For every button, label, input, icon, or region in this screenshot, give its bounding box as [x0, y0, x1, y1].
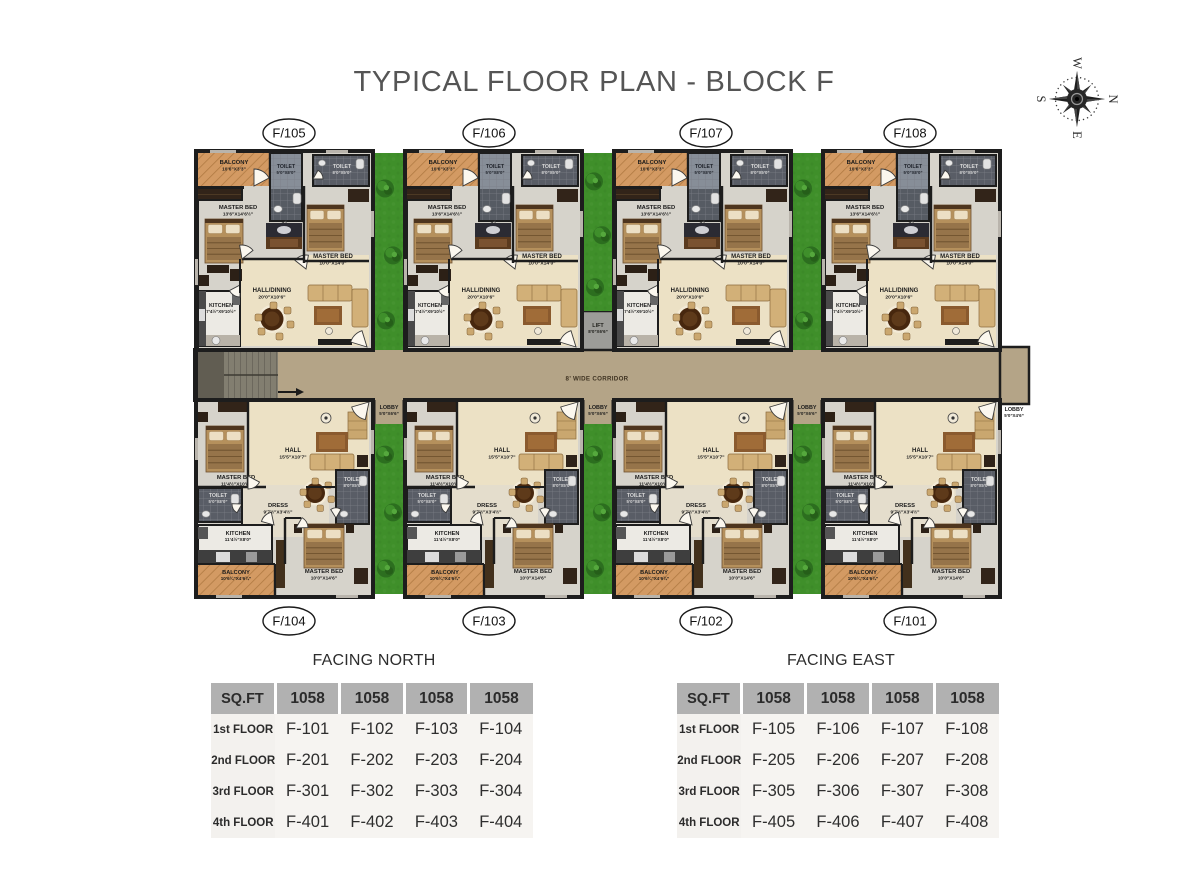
svg-text:MASTER BED: MASTER BED	[428, 205, 466, 211]
svg-text:8’0”X5’0”: 8’0”X5’0”	[971, 483, 990, 488]
svg-text:KITCHEN: KITCHEN	[226, 531, 251, 537]
svg-text:5’0”X8’0”: 5’0”X8’0”	[209, 499, 228, 504]
svg-text:KITCHEN: KITCHEN	[644, 531, 669, 537]
svg-text:5’0”X6’6”: 5’0”X6’6”	[379, 411, 399, 416]
svg-text:5’0”X6’6”: 5’0”X6’6”	[797, 411, 817, 416]
svg-text:MASTER BED: MASTER BED	[940, 254, 980, 260]
svg-text:11’4½”X8’0”: 11’4½”X8’0”	[434, 536, 460, 542]
svg-text:10’6¾”X4’6¾”: 10’6¾”X4’6¾”	[221, 575, 252, 581]
svg-text:F/107: F/107	[689, 126, 722, 141]
svg-text:5’0”X8’0”: 5’0”X8’0”	[418, 499, 437, 504]
svg-text:5’0”X8’0”: 5’0”X8’0”	[904, 170, 923, 175]
svg-text:HALL: HALL	[912, 448, 928, 454]
svg-text:HALL: HALL	[285, 448, 301, 454]
svg-text:13’6”X14’6½”: 13’6”X14’6½”	[223, 210, 254, 217]
svg-text:8’0”X5’0”: 8’0”X5’0”	[553, 483, 572, 488]
svg-text:MASTER BED: MASTER BED	[313, 254, 353, 260]
svg-text:MASTER BED: MASTER BED	[305, 569, 343, 575]
svg-text:F/102: F/102	[689, 614, 722, 629]
svg-text:10’6”X3’3”: 10’6”X3’3”	[222, 166, 246, 172]
svg-text:5’0”X8’0”: 5’0”X8’0”	[695, 170, 714, 175]
svg-text:HALL: HALL	[703, 448, 719, 454]
svg-text:7’4½”X9’10½”: 7’4½”X9’10½”	[624, 308, 653, 314]
svg-text:DRESS: DRESS	[686, 503, 706, 509]
svg-text:5’0”X8’0”: 5’0”X8’0”	[627, 499, 646, 504]
svg-text:N: N	[1106, 94, 1120, 103]
svg-text:5’0”X4’6”: 5’0”X4’6”	[1004, 413, 1024, 418]
svg-text:7’4½”X9’10½”: 7’4½”X9’10½”	[833, 308, 862, 314]
svg-text:F/105: F/105	[272, 126, 305, 141]
svg-text:8’0”X6’6”: 8’0”X6’6”	[588, 329, 608, 334]
svg-text:8’0”X5’0”: 8’0”X5’0”	[751, 170, 770, 175]
svg-text:10’0”X14’6”: 10’0”X14’6”	[938, 575, 965, 581]
svg-text:8’0”X5’0”: 8’0”X5’0”	[344, 483, 363, 488]
svg-text:DRESS: DRESS	[268, 503, 288, 509]
svg-text:7’4½”X9’10½”: 7’4½”X9’10½”	[415, 308, 444, 314]
svg-text:HALL/DINING: HALL/DINING	[462, 288, 501, 294]
svg-text:20’0”X10’6”: 20’0”X10’6”	[467, 295, 495, 301]
svg-text:F/106: F/106	[472, 126, 505, 141]
svg-text:10’0”X14’6”: 10’0”X14’6”	[520, 575, 547, 581]
svg-text:KITCHEN: KITCHEN	[853, 531, 878, 537]
svg-text:F/108: F/108	[893, 126, 926, 141]
svg-text:DRESS: DRESS	[477, 503, 497, 509]
svg-text:MASTER BED: MASTER BED	[846, 205, 884, 211]
svg-text:BALCONY: BALCONY	[849, 570, 877, 576]
svg-text:BALCONY: BALCONY	[429, 160, 458, 166]
svg-text:F/104: F/104	[272, 614, 305, 629]
svg-text:10’6”X3’3”: 10’6”X3’3”	[849, 166, 873, 172]
svg-text:15’5”X10’7”: 15’5”X10’7”	[906, 455, 934, 461]
svg-text:F/101: F/101	[893, 614, 926, 629]
svg-text:20’0”X10’6”: 20’0”X10’6”	[885, 295, 913, 301]
svg-text:10’0”X14’6”: 10’0”X14’6”	[311, 575, 338, 581]
svg-text:8’0”X5’0”: 8’0”X5’0”	[542, 170, 561, 175]
svg-text:HALL/DINING: HALL/DINING	[671, 288, 710, 294]
svg-text:MASTER BED: MASTER BED	[731, 254, 771, 260]
svg-text:10’6¾”X4’6¾”: 10’6¾”X4’6¾”	[639, 575, 670, 581]
svg-text:MASTER BED: MASTER BED	[932, 569, 970, 575]
svg-text:11’4½”X8’0”: 11’4½”X8’0”	[225, 536, 251, 542]
svg-text:BALCONY: BALCONY	[431, 570, 459, 576]
svg-text:KITCHEN: KITCHEN	[435, 531, 460, 537]
svg-text:15’5”X10’7”: 15’5”X10’7”	[279, 455, 307, 461]
svg-text:BALCONY: BALCONY	[847, 160, 876, 166]
svg-text:10’6¾”X4’6¾”: 10’6¾”X4’6¾”	[848, 575, 879, 581]
svg-text:11’4½”X8’0”: 11’4½”X8’0”	[643, 536, 669, 542]
svg-text:7’4½”X9’10½”: 7’4½”X9’10½”	[206, 308, 235, 314]
svg-text:11’4½”X8’0”: 11’4½”X8’0”	[852, 536, 878, 542]
svg-text:HALL/DINING: HALL/DINING	[880, 288, 919, 294]
svg-text:20’0”X10’6”: 20’0”X10’6”	[258, 295, 286, 301]
svg-text:5’0”X6’6”: 5’0”X6’6”	[588, 411, 608, 416]
svg-text:20’0”X10’6”: 20’0”X10’6”	[676, 295, 704, 301]
svg-text:HALL/DINING: HALL/DINING	[253, 288, 292, 294]
svg-text:10’6”X3’3”: 10’6”X3’3”	[431, 166, 455, 172]
svg-text:BALCONY: BALCONY	[640, 570, 668, 576]
svg-text:8’0”X5’0”: 8’0”X5’0”	[762, 483, 781, 488]
svg-text:S: S	[1034, 96, 1048, 103]
svg-text:E: E	[1070, 131, 1084, 139]
svg-text:F/103: F/103	[472, 614, 505, 629]
svg-text:MASTER BED: MASTER BED	[219, 205, 257, 211]
svg-text:DRESS: DRESS	[895, 503, 915, 509]
svg-text:13’6”X14’6½”: 13’6”X14’6½”	[850, 210, 881, 217]
svg-text:BALCONY: BALCONY	[220, 160, 249, 166]
svg-text:MASTER BED: MASTER BED	[514, 569, 552, 575]
svg-text:5’0”X8’0”: 5’0”X8’0”	[486, 170, 505, 175]
svg-text:10’0”X14’6”: 10’0”X14’6”	[729, 575, 756, 581]
svg-text:MASTER BED: MASTER BED	[723, 569, 761, 575]
svg-text:10’6”X3’3”: 10’6”X3’3”	[640, 166, 664, 172]
svg-text:8’0”X5’0”: 8’0”X5’0”	[333, 170, 352, 175]
svg-text:W: W	[1070, 57, 1084, 69]
svg-text:HALL: HALL	[494, 448, 510, 454]
svg-text:8’0”X5’0”: 8’0”X5’0”	[960, 170, 979, 175]
svg-text:15’5”X10’7”: 15’5”X10’7”	[488, 455, 516, 461]
svg-text:BALCONY: BALCONY	[222, 570, 250, 576]
svg-text:8’ WIDE CORRIDOR: 8’ WIDE CORRIDOR	[566, 376, 629, 383]
svg-text:13’6”X14’6½”: 13’6”X14’6½”	[432, 210, 463, 217]
svg-text:10’6¾”X4’6¾”: 10’6¾”X4’6¾”	[430, 575, 461, 581]
svg-text:MASTER BED: MASTER BED	[522, 254, 562, 260]
svg-text:5’0”X8’0”: 5’0”X8’0”	[836, 499, 855, 504]
svg-text:TYPICAL FLOOR PLAN - BLOCK F: TYPICAL FLOOR PLAN - BLOCK F	[353, 66, 834, 98]
svg-text:13’6”X14’6½”: 13’6”X14’6½”	[641, 210, 672, 217]
svg-text:5’0”X8’0”: 5’0”X8’0”	[277, 170, 296, 175]
svg-text:BALCONY: BALCONY	[638, 160, 667, 166]
svg-text:MASTER BED: MASTER BED	[637, 205, 675, 211]
svg-text:15’5”X10’7”: 15’5”X10’7”	[697, 455, 725, 461]
